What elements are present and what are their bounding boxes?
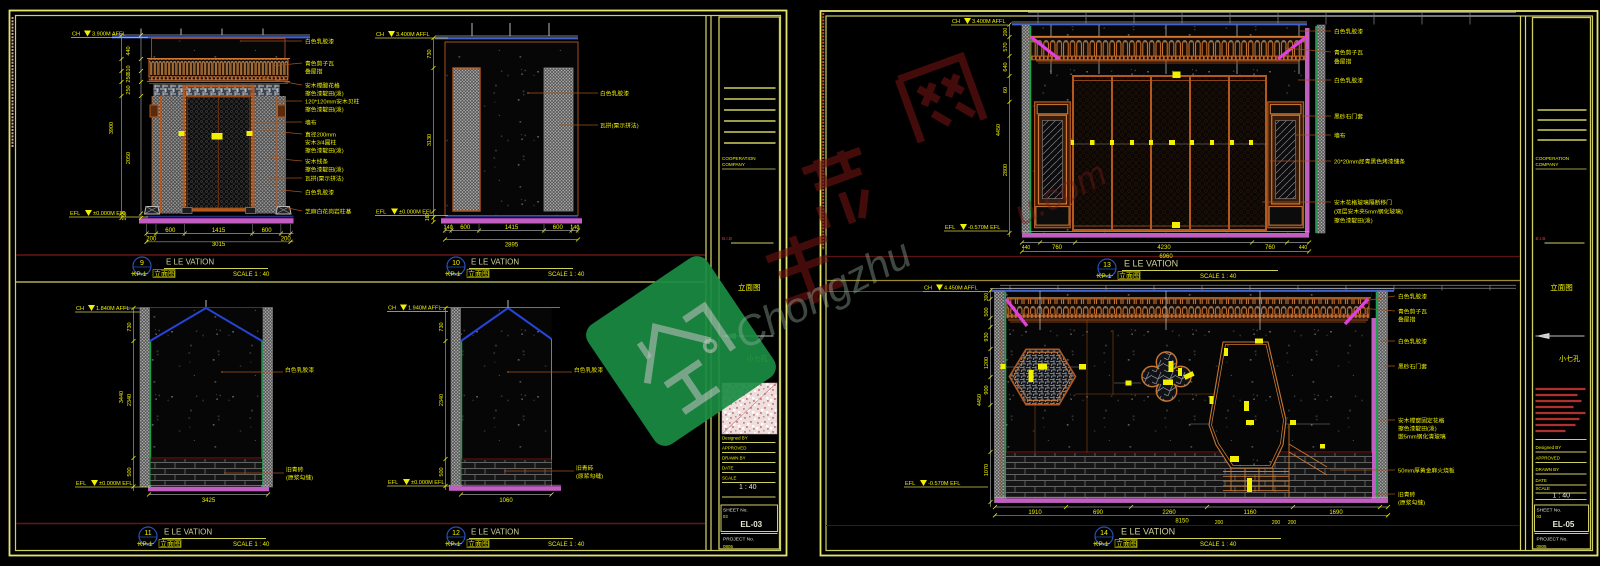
svg-text:青色剪子瓦: 青色剪子瓦 <box>1334 49 1363 57</box>
svg-text:200: 200 <box>1288 520 1297 526</box>
svg-text:50mm厚黄金麻火烧板: 50mm厚黄金麻火烧板 <box>1398 467 1455 475</box>
svg-text:4.450M AFFL: 4.450M AFFL <box>944 286 978 292</box>
svg-text:PROJECT No.: PROJECT No. <box>1537 537 1568 543</box>
svg-text:SCALE 1 : 40: SCALE 1 : 40 <box>1200 542 1237 548</box>
svg-text:立面图: 立面图 <box>468 539 489 548</box>
svg-text:叠屋措: 叠屋措 <box>1334 58 1352 66</box>
svg-text:小七孔: 小七孔 <box>1559 354 1580 363</box>
svg-text:1415: 1415 <box>505 225 519 231</box>
svg-text:旧青砖: 旧青砖 <box>286 466 304 474</box>
svg-text:擦色漆靛田(泼): 擦色漆靛田(泼) <box>1334 217 1373 225</box>
svg-text:DATE: DATE <box>1536 478 1547 483</box>
svg-text:200: 200 <box>281 236 292 242</box>
svg-text:KP-1: KP-1 <box>1094 541 1109 548</box>
svg-text:13: 13 <box>1103 262 1111 269</box>
svg-text:2895: 2895 <box>505 243 519 249</box>
svg-text:EFL: EFL <box>376 210 386 216</box>
svg-text:安木樘窗固定花格: 安木樘窗固定花格 <box>1398 417 1445 425</box>
svg-text:1910: 1910 <box>1028 510 1042 516</box>
svg-text:(双层安木夹5mm钢化玻璃): (双层安木夹5mm钢化玻璃) <box>1334 208 1403 216</box>
svg-text:擦色漆靛田(泼): 擦色漆靛田(泼) <box>305 166 344 174</box>
svg-text:B.I.B: B.I.B <box>1536 236 1546 241</box>
svg-text:±0.000M EFL: ±0.000M EFL <box>99 481 133 487</box>
svg-text:760: 760 <box>1052 245 1063 251</box>
svg-text:1 : 40: 1 : 40 <box>1553 493 1571 500</box>
svg-text:4450: 4450 <box>996 124 1002 136</box>
svg-text:叠屋措: 叠屋措 <box>305 68 323 76</box>
svg-text:白色乳胶漆: 白色乳胶漆 <box>1398 293 1427 301</box>
svg-text:-0.570M EFL: -0.570M EFL <box>928 481 960 487</box>
svg-text:0805: 0805 <box>1537 544 1548 549</box>
svg-text:-0.570M EFL: -0.570M EFL <box>968 225 1000 231</box>
svg-text:EFL: EFL <box>388 480 398 486</box>
svg-text:570: 570 <box>1003 42 1009 51</box>
svg-text:E LE VATION: E LE VATION <box>1124 259 1178 269</box>
svg-text:白色乳胶漆: 白色乳胶漆 <box>1334 77 1363 85</box>
svg-text:1.840M AFFL: 1.840M AFFL <box>96 306 130 312</box>
svg-text:200: 200 <box>1215 520 1224 526</box>
svg-text:COOPERATION: COOPERATION <box>722 156 756 161</box>
svg-text:白色乳胶漆: 白色乳胶漆 <box>305 38 334 46</box>
svg-text:KP-1: KP-1 <box>132 271 147 278</box>
svg-text:旧青砖: 旧青砖 <box>576 464 594 472</box>
svg-text:3.900M AFFL: 3.900M AFFL <box>92 32 126 38</box>
svg-text:2340: 2340 <box>127 394 133 406</box>
svg-text:SCALE 1 : 40: SCALE 1 : 40 <box>233 542 270 548</box>
svg-text:640: 640 <box>1003 62 1009 71</box>
svg-text:20*20mm烃青黑色烤漆缝条: 20*20mm烃青黑色烤漆缝条 <box>1334 158 1405 166</box>
svg-text:Designed BY: Designed BY <box>722 436 748 441</box>
svg-text:(原浆勾缝): (原浆勾缝) <box>1398 499 1425 507</box>
svg-text:EL-05: EL-05 <box>1553 520 1575 529</box>
svg-text:500: 500 <box>127 467 133 476</box>
svg-text:250: 250 <box>126 73 132 82</box>
svg-text:EFL: EFL <box>70 211 80 217</box>
svg-text:±0.000M EFL: ±0.000M EFL <box>411 480 445 486</box>
svg-text:立面图: 立面图 <box>160 539 181 548</box>
svg-text:14: 14 <box>1100 530 1108 537</box>
svg-text:4230: 4230 <box>1157 245 1171 251</box>
svg-text:03: 03 <box>1537 514 1542 519</box>
svg-text:2050: 2050 <box>126 152 132 164</box>
svg-text:叠屋措: 叠屋措 <box>1398 316 1416 324</box>
svg-text:KP-1: KP-1 <box>446 541 461 548</box>
svg-text:3425: 3425 <box>202 498 216 504</box>
svg-text:擦色漆靛田(泼): 擦色漆靛田(泼) <box>305 90 344 98</box>
svg-text:500: 500 <box>984 307 990 316</box>
svg-text:1415: 1415 <box>212 228 226 234</box>
svg-text:EFL: EFL <box>905 481 915 487</box>
svg-text:1070: 1070 <box>984 464 990 476</box>
svg-text:Designed BY: Designed BY <box>1536 445 1562 450</box>
svg-text:8150: 8150 <box>1175 519 1189 525</box>
svg-text:200: 200 <box>1003 28 1009 37</box>
svg-text:0805: 0805 <box>723 544 734 549</box>
svg-text:CH: CH <box>388 306 396 312</box>
svg-text:E LE VATION: E LE VATION <box>471 528 519 537</box>
svg-text:SCALE: SCALE <box>722 476 736 481</box>
svg-text:(原浆勾缝): (原浆勾缝) <box>286 474 313 482</box>
svg-text:730: 730 <box>127 322 133 331</box>
svg-text:690: 690 <box>1093 510 1104 516</box>
svg-text:黑砂石门套: 黑砂石门套 <box>1398 363 1427 371</box>
svg-text:(原浆勾缝): (原浆勾缝) <box>576 472 603 480</box>
svg-text:黑砂石门套: 黑砂石门套 <box>1334 113 1363 121</box>
svg-text:140: 140 <box>444 225 453 231</box>
svg-text:SHEET No.: SHEET No. <box>723 508 748 514</box>
svg-text:730: 730 <box>439 322 445 331</box>
svg-text:10: 10 <box>452 260 460 267</box>
svg-text:墙布: 墙布 <box>1334 132 1346 140</box>
svg-text:SCALE 1 : 40: SCALE 1 : 40 <box>548 272 585 278</box>
svg-text:立面图: 立面图 <box>1116 539 1137 548</box>
svg-text:3440: 3440 <box>119 391 125 403</box>
svg-text:旧青砖: 旧青砖 <box>1398 491 1416 499</box>
svg-text:DRAWN BY: DRAWN BY <box>722 456 746 461</box>
svg-text:900: 900 <box>984 385 990 394</box>
svg-text:60: 60 <box>1003 87 1009 93</box>
svg-text:3.400M AFFL: 3.400M AFFL <box>396 32 430 38</box>
svg-text:600: 600 <box>553 225 564 231</box>
svg-text:CH: CH <box>952 19 960 25</box>
svg-text:600: 600 <box>165 228 176 234</box>
svg-text:1690: 1690 <box>1329 510 1343 516</box>
svg-text:COMPANY: COMPANY <box>1536 162 1559 167</box>
svg-text:SCALE 1 : 40: SCALE 1 : 40 <box>233 272 270 278</box>
svg-text:E LE VATION: E LE VATION <box>164 528 212 537</box>
svg-text:1200: 1200 <box>984 357 990 369</box>
svg-text:E LE VATION: E LE VATION <box>1121 527 1175 537</box>
svg-text:擦色漆靛田(泼): 擦色漆靛田(泼) <box>1398 425 1437 433</box>
svg-text:APPROVED: APPROVED <box>1536 456 1560 461</box>
svg-text:COMPANY: COMPANY <box>722 162 745 167</box>
svg-text:CH: CH <box>376 32 384 38</box>
svg-text:嵌5mm钢化清玻璃: 嵌5mm钢化清玻璃 <box>1398 433 1446 441</box>
svg-text:EL-03: EL-03 <box>740 520 762 529</box>
svg-text:白色乳胶漆: 白色乳胶漆 <box>1398 338 1427 346</box>
svg-text:KP-1: KP-1 <box>446 271 461 278</box>
svg-text:03: 03 <box>723 514 728 519</box>
svg-text:立面图: 立面图 <box>468 269 489 278</box>
svg-text:安木3/4圆柱: 安木3/4圆柱 <box>305 139 336 147</box>
svg-text:青色剪子瓦: 青色剪子瓦 <box>1398 308 1427 316</box>
svg-text:EFL: EFL <box>76 481 86 487</box>
svg-text:1060: 1060 <box>499 498 513 504</box>
svg-text:E LE VATION: E LE VATION <box>166 258 214 267</box>
svg-text:3130: 3130 <box>427 134 433 146</box>
svg-text:芝麻白花岗岩柱基: 芝麻白花岗岩柱基 <box>305 208 352 216</box>
svg-text:DRAWN BY: DRAWN BY <box>1536 467 1560 472</box>
svg-text:立面图: 立面图 <box>738 282 761 292</box>
svg-text:瓦拼(栗示拼法): 瓦拼(栗示拼法) <box>305 175 344 183</box>
svg-text:SCALE 1 : 40: SCALE 1 : 40 <box>548 542 585 548</box>
svg-text:1160: 1160 <box>1244 510 1258 516</box>
svg-text:730: 730 <box>427 49 433 58</box>
svg-text:CH: CH <box>924 286 932 292</box>
svg-text:瓦拼(栗示拼法): 瓦拼(栗示拼法) <box>600 122 639 130</box>
svg-text:120*120mm安木贝柱: 120*120mm安木贝柱 <box>305 98 360 106</box>
svg-text:440: 440 <box>126 46 132 55</box>
svg-text:白色乳胶漆: 白色乳胶漆 <box>1334 28 1363 36</box>
svg-text:300: 300 <box>984 293 990 302</box>
svg-text:B.I.B: B.I.B <box>722 236 732 241</box>
svg-text:KP-1: KP-1 <box>1097 273 1112 280</box>
svg-text:440: 440 <box>1022 245 1031 251</box>
svg-text:SCALE 1 : 40: SCALE 1 : 40 <box>1200 274 1237 280</box>
svg-text:1 : 40: 1 : 40 <box>739 484 757 491</box>
svg-text:9: 9 <box>140 260 144 267</box>
svg-text:青色剪子瓦: 青色剪子瓦 <box>305 60 334 68</box>
svg-text:安木线条: 安木线条 <box>305 158 328 166</box>
svg-text:E LE VATION: E LE VATION <box>471 258 519 267</box>
svg-text:440: 440 <box>1299 245 1308 251</box>
svg-text:白色乳胶漆: 白色乳胶漆 <box>305 189 334 197</box>
svg-text:200: 200 <box>146 236 157 242</box>
svg-text:200: 200 <box>1272 520 1281 526</box>
svg-text:白色乳胶漆: 白色乳胶漆 <box>285 366 314 374</box>
svg-text:SCALE: SCALE <box>1536 486 1550 491</box>
svg-text:立面图: 立面图 <box>1550 282 1573 292</box>
svg-text:600: 600 <box>262 228 273 234</box>
svg-text:760: 760 <box>1265 245 1276 251</box>
svg-text:500: 500 <box>439 467 445 476</box>
svg-text:SHEET No.: SHEET No. <box>1537 508 1562 514</box>
svg-text:180: 180 <box>425 213 431 222</box>
svg-text:白色乳胶漆: 白色乳胶漆 <box>600 90 629 98</box>
svg-text:安木花格玻璃隔断移门: 安木花格玻璃隔断移门 <box>1334 199 1392 207</box>
svg-text:CH: CH <box>76 306 84 312</box>
svg-text:KP-1: KP-1 <box>138 541 153 548</box>
svg-text:APPROVED: APPROVED <box>722 446 746 451</box>
svg-text:擦色漆靛田(泼): 擦色漆靛田(泼) <box>305 106 344 114</box>
svg-text:EFL: EFL <box>945 225 955 231</box>
svg-text:立面图: 立面图 <box>1119 271 1140 280</box>
svg-text:930: 930 <box>984 332 990 341</box>
svg-text:3900: 3900 <box>109 122 115 134</box>
svg-text:12: 12 <box>452 530 460 537</box>
svg-text:白色乳胶漆: 白色乳胶漆 <box>574 366 603 374</box>
svg-text:610: 610 <box>126 65 132 74</box>
svg-text:1.940M AFFL: 1.940M AFFL <box>408 306 442 312</box>
svg-text:4450: 4450 <box>977 394 983 406</box>
svg-text:DATE: DATE <box>722 466 733 471</box>
svg-text:3015: 3015 <box>212 242 226 248</box>
svg-text:2800: 2800 <box>1003 164 1009 176</box>
svg-text:2260: 2260 <box>1162 510 1176 516</box>
svg-text:立面图: 立面图 <box>154 269 175 278</box>
svg-text:安木樘酸花格: 安木樘酸花格 <box>305 82 340 90</box>
svg-text:3.400M AFFL: 3.400M AFFL <box>972 19 1006 25</box>
svg-text:擦色漆靛田(泼): 擦色漆靛田(泼) <box>305 147 344 155</box>
svg-text:2340: 2340 <box>439 394 445 406</box>
svg-text:140: 140 <box>570 225 579 231</box>
svg-text:COOPERATION: COOPERATION <box>1536 156 1570 161</box>
svg-text:CH: CH <box>72 32 80 38</box>
svg-text:墙布: 墙布 <box>305 119 317 127</box>
svg-text:250: 250 <box>126 85 132 94</box>
svg-text:100: 100 <box>122 211 128 220</box>
svg-text:600: 600 <box>460 225 471 231</box>
svg-text:PROJECT No.: PROJECT No. <box>723 537 754 543</box>
svg-text:直径200mm: 直径200mm <box>305 131 336 139</box>
svg-text:11: 11 <box>144 530 151 537</box>
